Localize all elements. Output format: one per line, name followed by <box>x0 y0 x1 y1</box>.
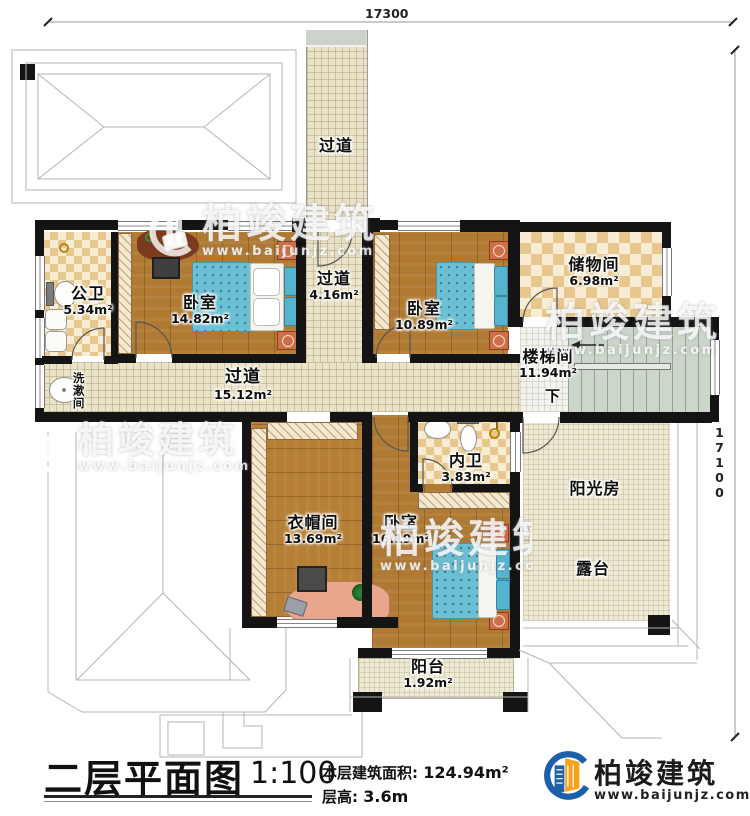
label-stairs-down: 下 <box>540 388 566 405</box>
label-terrace: 露台 <box>553 560 633 578</box>
bath-sink <box>45 331 67 352</box>
label-corridor-main: 过道 15.12m² <box>193 368 293 402</box>
dimension-top: 17300 <box>362 6 412 21</box>
window <box>398 221 460 231</box>
company-website: www.baijunjz.com <box>594 788 750 803</box>
label-inner-bath: 内卫 3.83m² <box>426 452 506 485</box>
company-name: 柏竣建筑 <box>594 752 718 792</box>
bed-cushion <box>496 580 510 610</box>
nightstand <box>277 331 298 350</box>
column <box>648 615 670 635</box>
company-logo-icon <box>544 750 590 802</box>
label-sunroom: 阳光房 <box>545 480 645 498</box>
label-bedroom1: 卧室 14.82m² <box>150 294 250 327</box>
window <box>35 318 45 358</box>
bathroom-sink <box>424 419 451 439</box>
label-storage: 储物间 6.98m² <box>534 256 654 289</box>
room-corridor-top-floor <box>306 30 368 220</box>
label-balcony: 阳台 1.92m² <box>378 658 478 691</box>
window <box>662 248 672 296</box>
floor-area-text: 本层建筑面积: 124.94m² <box>322 762 509 783</box>
bed-pillow-area <box>478 544 497 618</box>
label-corridor-top: 过道 <box>300 137 372 155</box>
towel-ring-icon <box>489 428 500 439</box>
window <box>710 340 720 395</box>
bed-cushion <box>494 266 508 296</box>
nightstand <box>489 524 509 542</box>
pillow <box>253 298 280 326</box>
bedroom3-closet <box>418 492 510 509</box>
dimension-right: 17100 <box>712 422 727 503</box>
ceiling-lamp-icon <box>59 243 69 253</box>
title-underline <box>44 795 312 798</box>
window <box>228 221 292 231</box>
label-stairwell: 楼梯间 11.94m² <box>488 348 608 381</box>
label-cloakroom: 衣帽间 13.69m² <box>266 514 360 547</box>
window <box>35 256 45 310</box>
nightstand <box>489 241 509 260</box>
watermark-logo-icon <box>26 422 70 474</box>
window <box>510 432 521 472</box>
watermark: 柏竣建筑 www.baijunjz.com <box>26 415 276 481</box>
title-underline-2 <box>44 801 312 802</box>
toilet-bowl <box>460 425 477 452</box>
label-public-bath: 公卫 5.34m² <box>52 285 124 318</box>
monitor-icon <box>297 566 327 592</box>
label-corridor-mid: 过道 4.16m² <box>300 270 368 303</box>
floor-height-text: 层高: 3.6m <box>322 786 408 807</box>
corridor-top-eave-band <box>306 30 366 47</box>
monitor-icon <box>152 257 180 279</box>
cloakroom-wardrobe-left <box>251 428 267 617</box>
target-icon <box>145 233 154 242</box>
washroom-sink-drain <box>62 388 66 392</box>
bed-cushion <box>494 296 508 326</box>
window <box>277 619 337 628</box>
column <box>503 692 528 712</box>
nightstand <box>277 241 298 260</box>
window <box>118 221 178 231</box>
column <box>353 692 382 712</box>
cloakroom-wardrobe-top <box>267 422 358 440</box>
floor-plan-canvas: 17300 17100 过道 公卫 5.34m² 卧室 14.82m² 过道 4… <box>0 0 750 816</box>
label-washroom: 洗漱间 <box>68 368 88 414</box>
label-bedroom2: 卧室 10.89m² <box>374 300 474 333</box>
room-terrace-floor <box>523 540 670 621</box>
bed-pillow-area <box>474 263 495 329</box>
pillow <box>253 268 280 296</box>
bed <box>432 543 480 619</box>
bed-cushion <box>496 549 510 579</box>
window <box>35 365 45 408</box>
roof-corner-post <box>20 64 35 80</box>
roof-top-left <box>12 50 296 203</box>
label-bedroom3: 卧室 16.19m² <box>356 514 446 547</box>
